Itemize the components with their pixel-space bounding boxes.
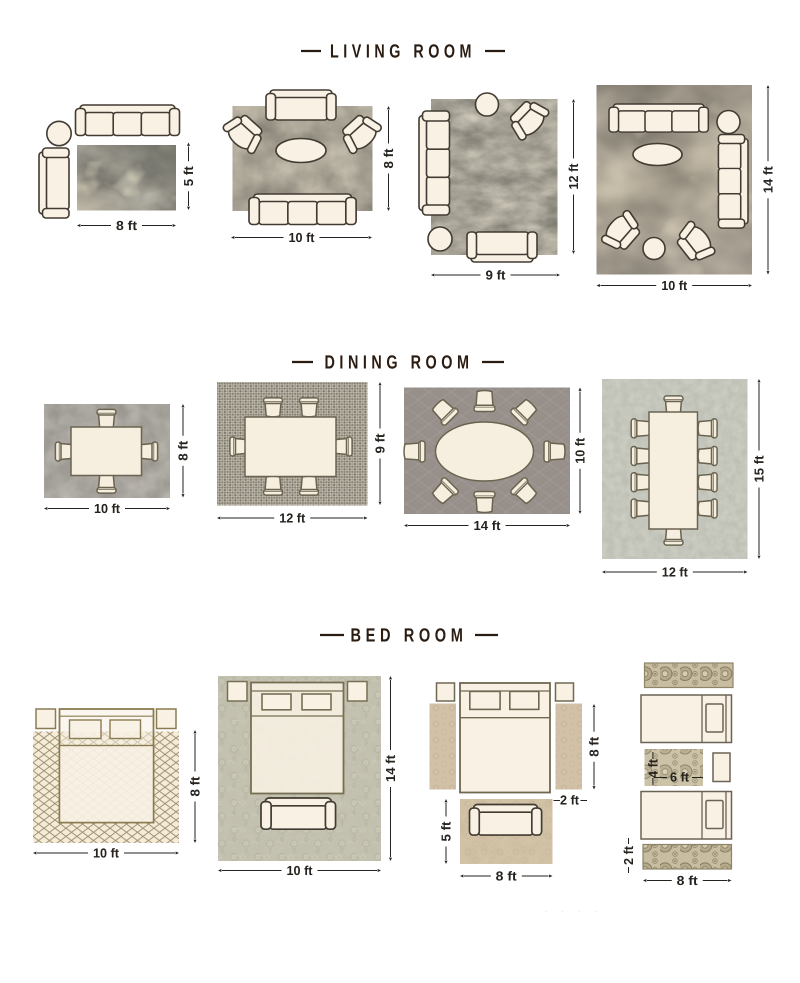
svg-text:8 ft: 8 ft [116,218,138,233]
svg-text:10 ft: 10 ft [661,278,688,293]
svg-text:14 ft: 14 ft [383,754,398,782]
svg-text:4 ft: 4 ft [645,758,660,778]
svg-text:10 ft: 10 ft [289,230,316,245]
svg-text:15 ft: 15 ft [751,455,766,483]
svg-text:14 ft: 14 ft [474,518,502,533]
svg-text:8 ft: 8 ft [175,440,190,461]
svg-text:9 ft: 9 ft [372,433,387,454]
svg-text:8 ft: 8 ft [677,873,699,888]
svg-text:12 ft: 12 ft [566,163,581,190]
svg-text:2 ft: 2 ft [621,845,636,865]
svg-text:8 ft: 8 ft [187,776,202,797]
svg-text:10 ft: 10 ft [94,501,121,516]
svg-text:LIVING ROOM: LIVING ROOM [330,42,476,63]
svg-text:12 ft: 12 ft [662,564,689,579]
svg-text:5 ft: 5 ft [181,166,196,187]
svg-text:8 ft: 8 ft [586,736,601,757]
svg-text:9 ft: 9 ft [486,267,507,282]
svg-text:. . . .: . . . . [545,905,603,914]
svg-text:8 ft: 8 ft [496,868,518,883]
svg-text:DINING ROOM: DINING ROOM [325,353,474,374]
svg-text:10 ft: 10 ft [287,863,314,878]
svg-text:8 ft: 8 ft [381,148,396,169]
svg-text:10 ft: 10 ft [572,437,587,464]
svg-text:6 ft: 6 ft [670,770,690,785]
svg-text:14 ft: 14 ft [760,166,775,194]
svg-text:2 ft: 2 ft [560,793,580,808]
svg-text:BED ROOM: BED ROOM [351,626,468,647]
svg-text:10 ft: 10 ft [93,845,120,860]
svg-text:12 ft: 12 ft [279,510,306,525]
svg-text:5 ft: 5 ft [438,821,453,842]
